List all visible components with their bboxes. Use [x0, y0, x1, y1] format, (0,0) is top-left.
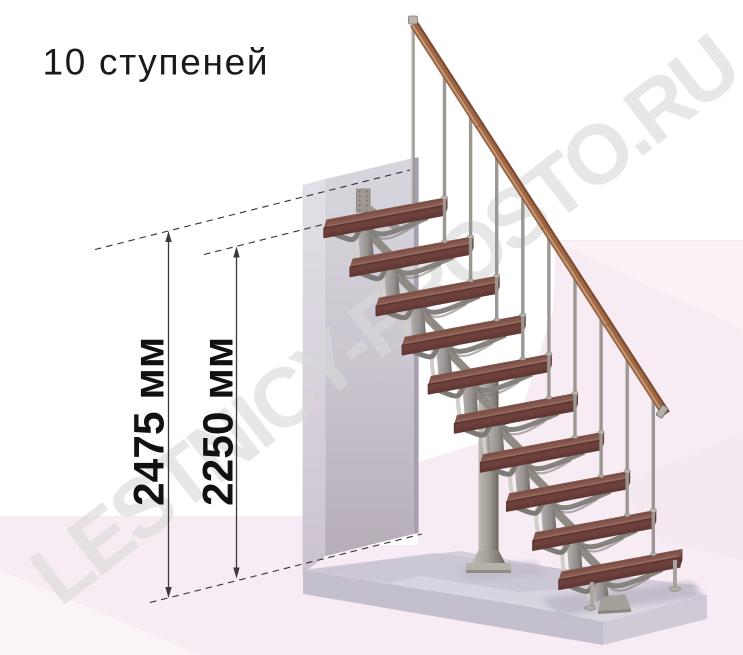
- svg-text:2475 мм: 2475 мм: [127, 337, 174, 506]
- svg-text:2250 мм: 2250 мм: [196, 337, 243, 506]
- svg-text:10 ступеней: 10 ступеней: [43, 42, 270, 83]
